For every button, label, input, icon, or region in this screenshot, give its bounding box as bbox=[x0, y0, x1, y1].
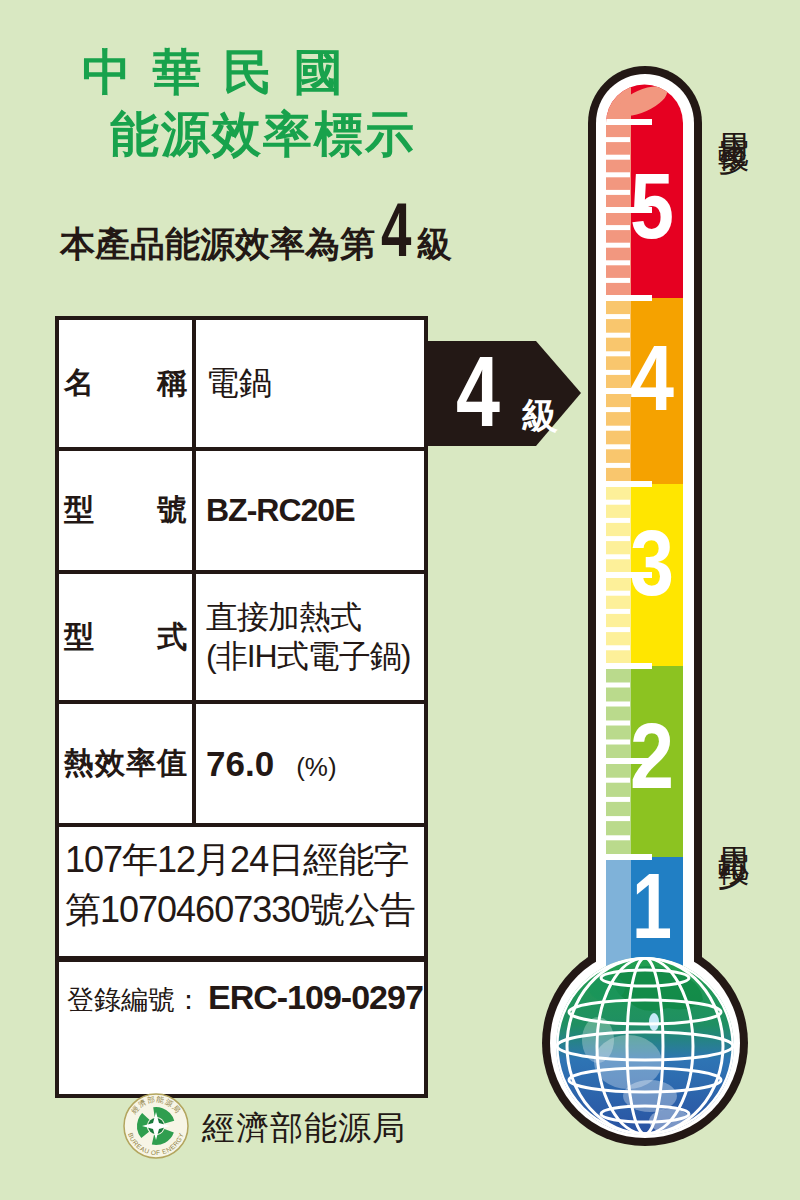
type-value-line1: 直接加熱式 bbox=[206, 598, 424, 637]
statement-prefix: 本產品能源效率為第 bbox=[60, 221, 375, 268]
agency-name: 經濟部能源局 bbox=[202, 1106, 406, 1151]
table-row-name: 名 稱 電鍋 bbox=[59, 320, 424, 451]
announcement-line1: 107年12月24日經能字 bbox=[65, 835, 422, 885]
level-4-number: 4 bbox=[630, 326, 674, 430]
level-3-number: 3 bbox=[630, 511, 674, 615]
efficiency-value: 76.0 bbox=[206, 744, 274, 784]
table-row-registration: 登錄編號： ERC-109-0297 bbox=[59, 962, 424, 1094]
product-name: 電鍋 bbox=[206, 361, 424, 406]
table-row-efficiency: 熱效率值 76.0 (%) bbox=[59, 704, 424, 827]
model-number: BZ-RC20E bbox=[206, 492, 424, 529]
grade-arrow: 4 級 bbox=[425, 335, 581, 447]
level-5-number: 5 bbox=[630, 154, 674, 258]
globe bbox=[556, 957, 734, 1135]
grade-arrow-number: 4 bbox=[456, 335, 500, 447]
segment-1-highlight bbox=[606, 857, 631, 968]
type-label-cell: 型 式 bbox=[59, 574, 196, 700]
energy-label: 中 華 民 國 能源效率標示 本產品能源效率為第 4 級 名 稱 電鍋 型 號 … bbox=[0, 0, 800, 1200]
spec-table: 名 稱 電鍋 型 號 BZ-RC20E 型 式 直接加熱式 (非IH式電子鍋) bbox=[55, 316, 428, 1098]
grade-arrow-suffix: 級 bbox=[521, 395, 558, 436]
page-title-line1: 中 華 民 國 bbox=[82, 40, 347, 106]
efficiency-statement: 本產品能源效率為第 4 級 bbox=[60, 200, 452, 268]
type-value-line2: (非IH式電子鍋) bbox=[206, 637, 424, 676]
globe-taiwan-highlight bbox=[649, 1013, 659, 1031]
name-value-cell: 電鍋 bbox=[196, 320, 424, 447]
name-label: 名 稱 bbox=[64, 363, 187, 404]
uses-less-power-label: 用電較少 bbox=[712, 822, 754, 838]
name-label-cell: 名 稱 bbox=[59, 320, 196, 447]
type-label: 型 式 bbox=[64, 617, 187, 658]
efficiency-label: 熱效率值 bbox=[64, 743, 187, 784]
level-1-number: 1 bbox=[632, 854, 672, 958]
model-value-cell: BZ-RC20E bbox=[196, 451, 424, 570]
table-row-announcement: 107年12月24日經能字 第10704607330號公告 bbox=[59, 827, 424, 962]
thermometer-graphic: 5 4 3 2 1 bbox=[410, 40, 800, 1200]
registration-number: ERC-109-0297 bbox=[208, 978, 423, 1017]
efficiency-value-cell: 76.0 (%) bbox=[196, 704, 424, 823]
page-title-line2: 能源效率標示 bbox=[110, 102, 416, 168]
registration-label: 登錄編號： bbox=[67, 982, 202, 1018]
efficiency-unit: (%) bbox=[296, 752, 336, 783]
type-value-cell: 直接加熱式 (非IH式電子鍋) bbox=[196, 574, 424, 700]
uses-more-power-label: 用電較多 bbox=[712, 108, 754, 124]
bureau-of-energy-seal: 經濟部能源局 BUREAU OF ENERGY bbox=[120, 1090, 192, 1162]
table-row-model: 型 號 BZ-RC20E bbox=[59, 451, 424, 574]
level-2-number: 2 bbox=[630, 704, 674, 808]
announcement-line2: 第10704607330號公告 bbox=[65, 885, 422, 935]
statement-grade-number: 4 bbox=[381, 200, 411, 261]
model-label: 型 號 bbox=[64, 490, 187, 531]
efficiency-label-cell: 熱效率值 bbox=[59, 704, 196, 823]
model-label-cell: 型 號 bbox=[59, 451, 196, 570]
table-row-type: 型 式 直接加熱式 (非IH式電子鍋) bbox=[59, 574, 424, 704]
